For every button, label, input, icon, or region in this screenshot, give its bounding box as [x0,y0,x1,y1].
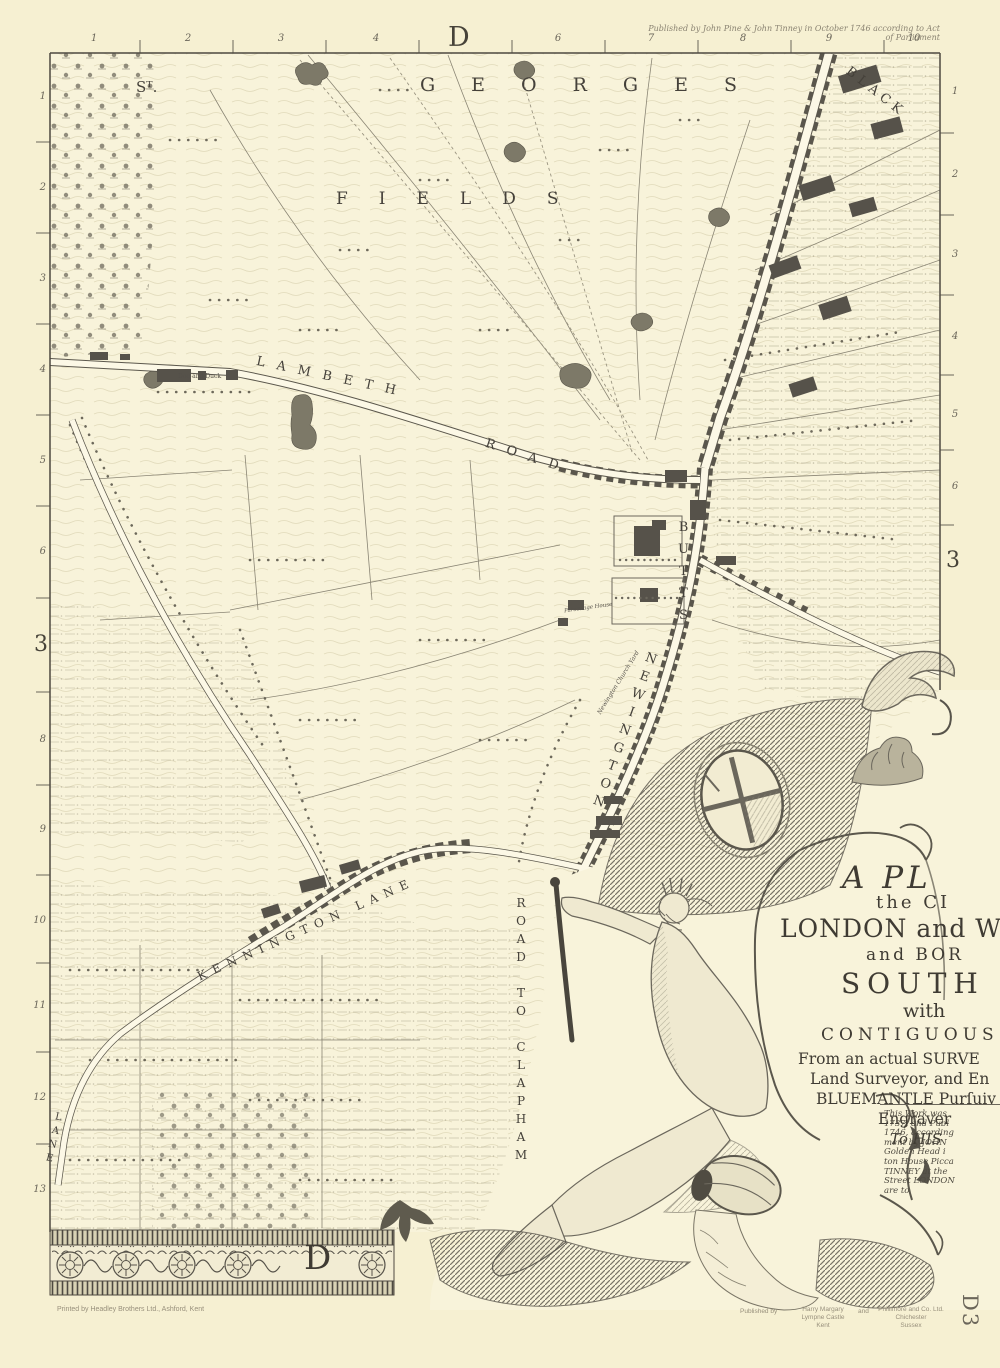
cartouche-title-line: LONDON and W [780,914,1000,943]
grid-number-top: 7 [642,33,660,44]
grid-number-left: 10 [28,915,46,926]
grid-number-right: 4 [946,331,964,342]
grid-number-top: 8 [734,33,752,44]
grid-number-left: 8 [28,734,46,745]
label-dog-and-duck: Dog and Duck [178,373,221,380]
grid-number-right: 6 [946,481,964,492]
grid-number-left: 2 [28,182,46,193]
cartouche-title-line: and BOR [866,945,1000,965]
label-road-to-clapham: ROAD TO CLAPHAM [514,896,528,1166]
cartouche-title-line: with [903,1000,1000,1022]
label-georges: GEORGES [420,74,773,96]
cartouche-title-line: the CI [876,892,1000,913]
grid-number-left: 5 [28,455,46,466]
label-st-prefix: Sᵀ. [136,78,157,96]
cartouche-divider [880,1104,1000,1105]
grid-number-top: 6 [549,33,567,44]
grid-number-top: 9 [820,33,838,44]
publisher-prefix: Published by [740,1308,777,1315]
publisher-and: and [858,1308,869,1315]
sheet-row-left: 3 [34,632,48,657]
grid-number-right: 3 [946,249,964,260]
printer-imprint: Printed by Headley Brothers Ltd., Ashfor… [57,1306,204,1313]
grid-number-left: 3 [28,273,46,284]
cartouche-title-line: From an actual SURVE [798,1050,1000,1068]
sheet-row-right: 3 [946,548,960,573]
grid-number-right: 2 [946,169,964,180]
label-fields: FIELDS [336,189,590,209]
grid-number-left: 4 [28,364,46,375]
grid-number-right: 5 [946,409,964,420]
label-butts: BUTTS [676,520,691,630]
map-sheet-page: Published by John Pine & John Tinney in … [0,0,1000,1368]
publisher-phillimore: Phillimore and Co. Ltd. Chichester Susse… [876,1306,946,1330]
grid-number-top: 10 [905,33,923,44]
sheet-letter-bottom: D [304,1238,331,1278]
grid-number-left: 11 [28,1000,46,1011]
cartouche-note: This Work was 1737, and Publ 1746, accor… [884,1110,1000,1196]
publication-imprint: Published by John Pine & John Tinney in … [640,24,940,42]
cartouche-title-line: A PL [842,860,1000,896]
cartouche-title-line: BLUEMANTLE Purſuiv [816,1090,1000,1108]
grid-number-left: 9 [28,824,46,835]
publisher-line: Phillimore and Co. Ltd. [876,1306,946,1314]
sheet-letter-top: D [448,22,470,53]
cartouche-title-line: Land Surveyor, and En [810,1070,1000,1088]
grid-number-top: 4 [367,33,385,44]
grid-number-right: 1 [946,86,964,97]
publisher-margary: Harry Margary Lympne Castle Kent [788,1306,858,1330]
frieze [50,1230,394,1295]
grid-number-left: 6 [28,546,46,557]
grid-number-top: 2 [179,33,197,44]
publisher-line: Kent [788,1322,858,1330]
grid-number-left: 1 [28,91,46,102]
publisher-line: Harry Margary [788,1306,858,1314]
cartouche-note-line: are to [884,1187,1000,1197]
grid-number-left: 12 [28,1092,46,1103]
grid-number-top: 3 [272,33,290,44]
publisher-line: Lympne Castle [788,1314,858,1322]
sheet-code: D3 [958,1294,982,1328]
grid-number-top: 1 [85,33,103,44]
publisher-line: Sussex [876,1322,946,1330]
cartouche-title-line: SOUTH [841,967,1000,1000]
cartouche-title-line: CONTIGUOUS [821,1025,1000,1045]
grid-number-left: 13 [28,1184,46,1195]
publisher-line: Chichester [876,1314,946,1322]
